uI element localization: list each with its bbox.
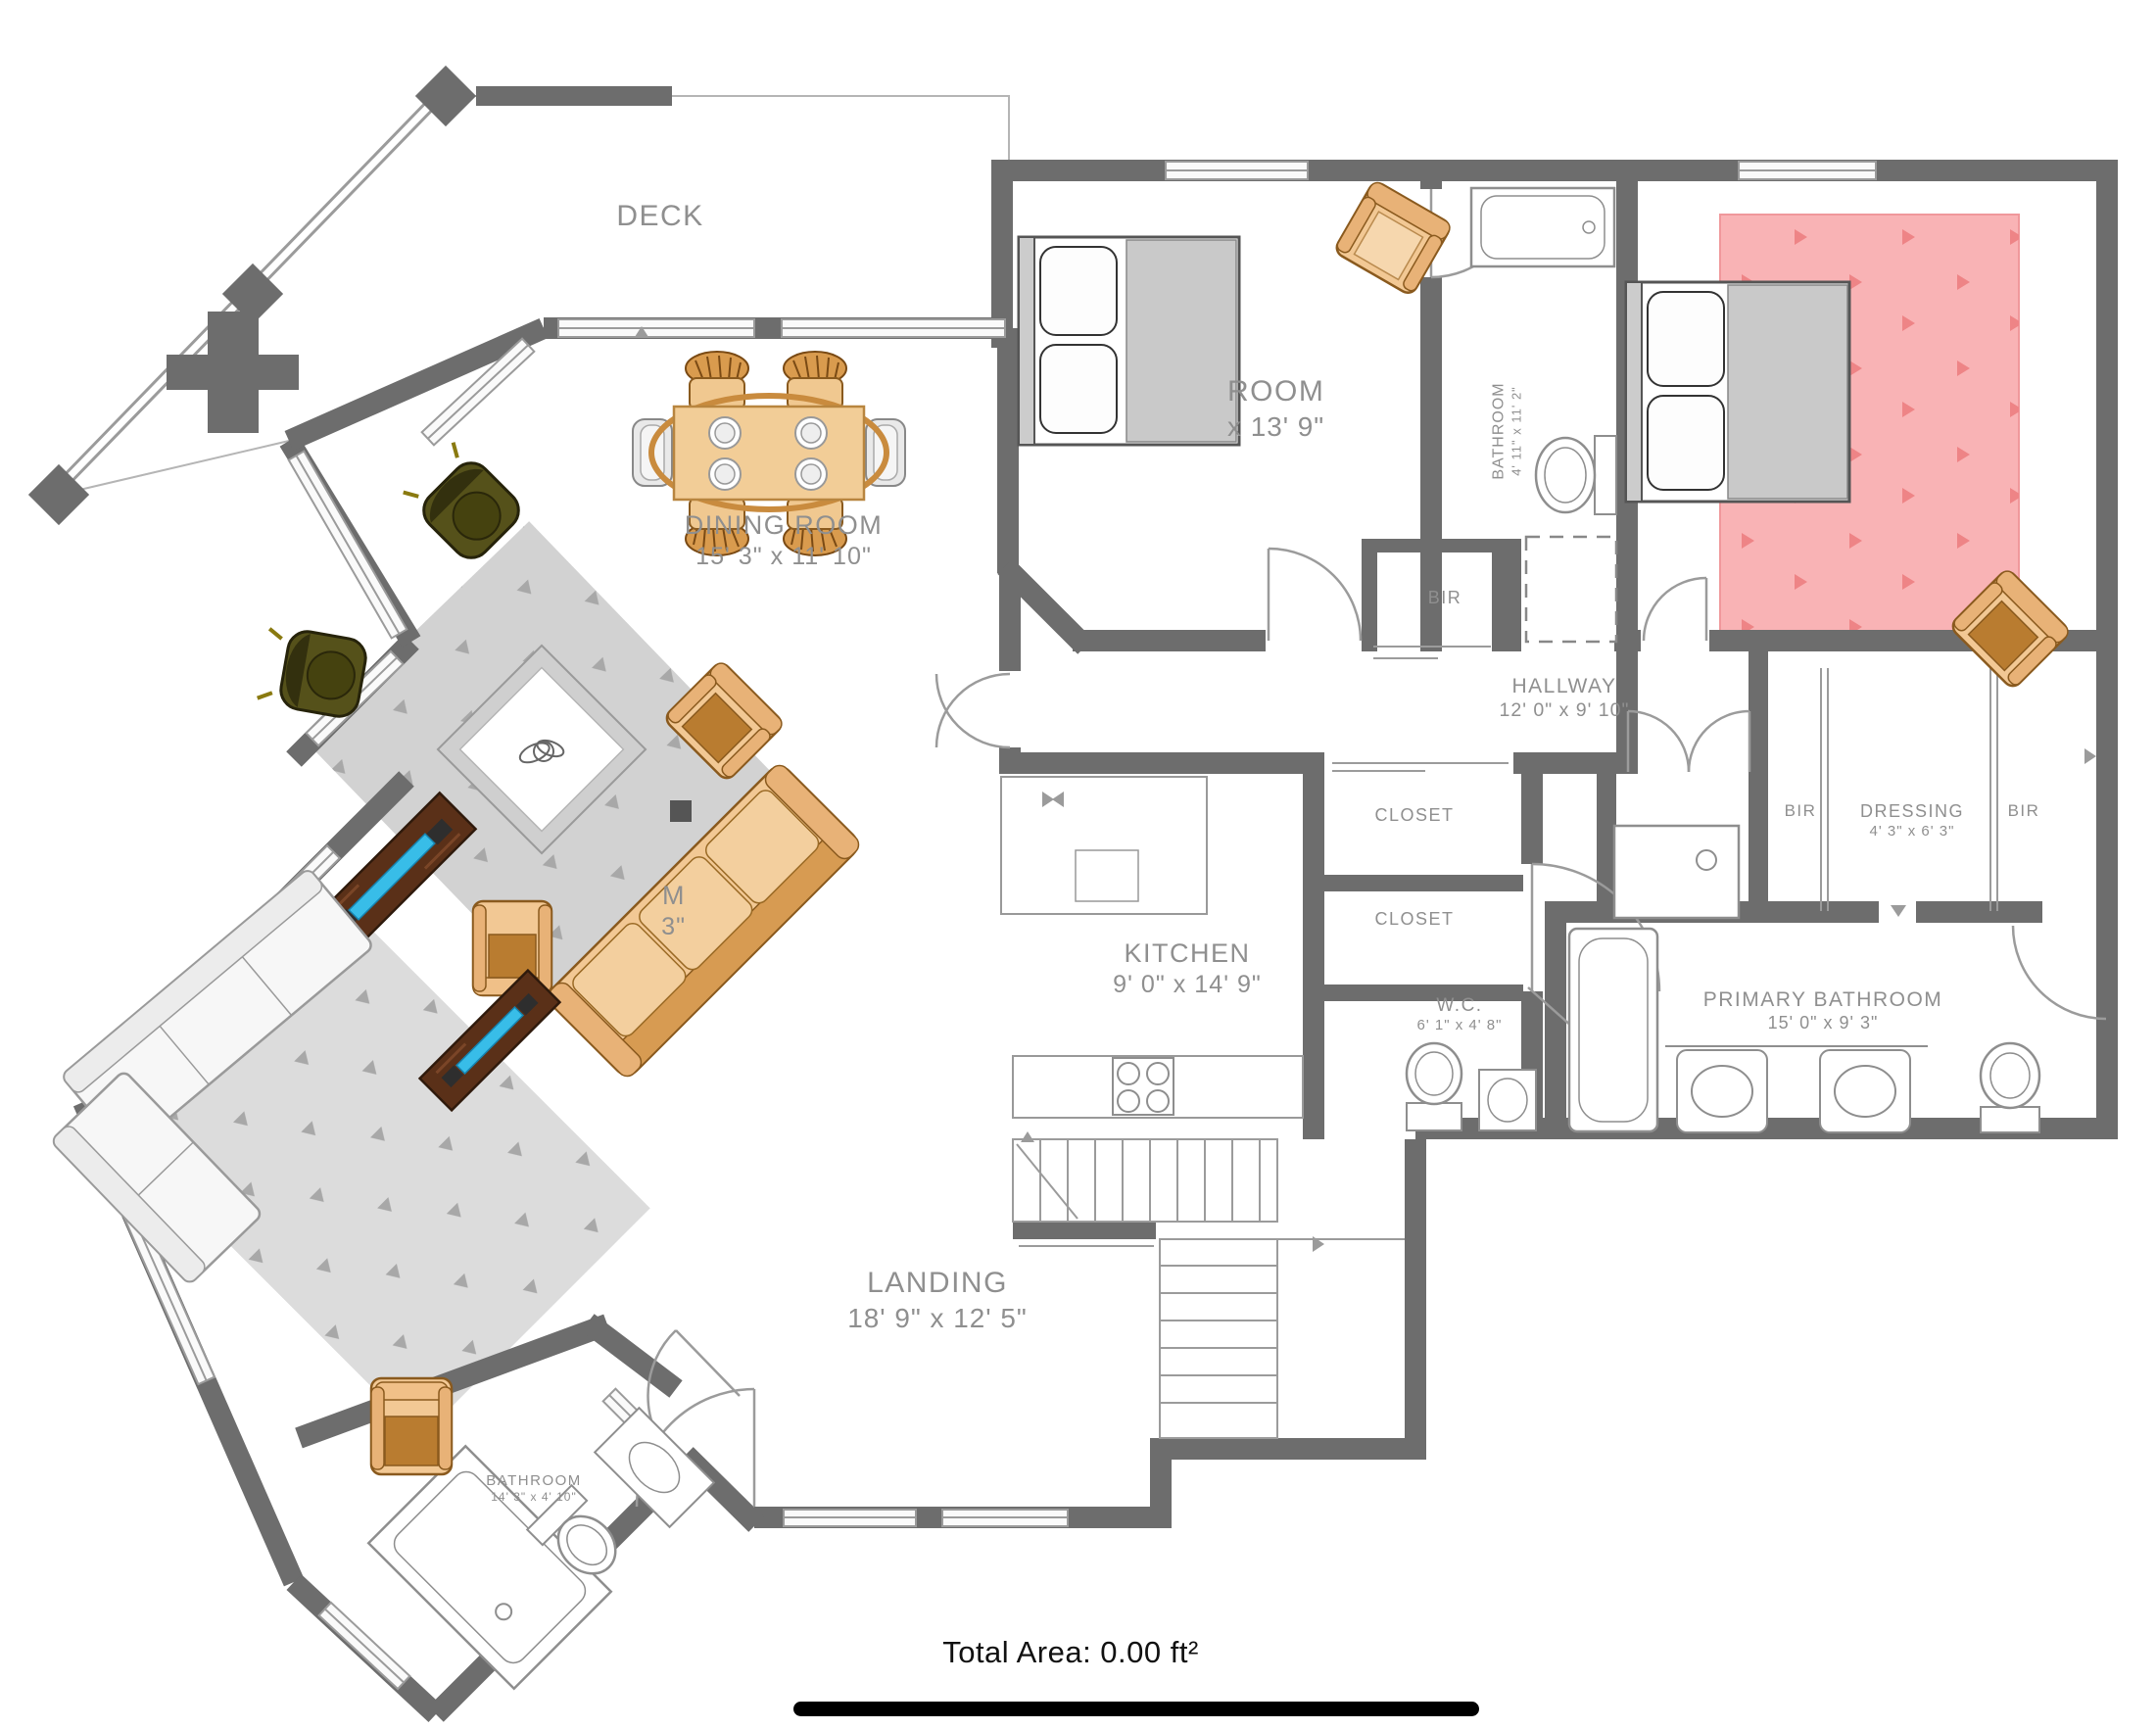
wall-post (670, 800, 692, 822)
mirror-doors-dressing (1821, 668, 1997, 911)
door-kitchen-double (936, 674, 1010, 747)
floorplan-canvas: DECK DINING ROOM 15' 3" x 11' 10" ROOM x… (0, 0, 2156, 1729)
dining-table (674, 407, 864, 500)
room-label-bathroom-lower[interactable]: BATHROOM 14' 3" x 4' 10" (486, 1472, 582, 1505)
toilet-wc[interactable] (1407, 1043, 1461, 1130)
pillow (1648, 292, 1724, 386)
armchair-family[interactable] (371, 1378, 452, 1474)
room-label-landing[interactable]: LANDING 18' 9" x 12' 5" (847, 1266, 1027, 1335)
scale-bar (793, 1702, 1479, 1716)
room-label-bir-left[interactable]: BIR (1785, 801, 1817, 822)
room-label-bathroom-top[interactable]: BATHROOM 4' 11" x 11' 2" (1489, 358, 1523, 504)
headboard (1626, 282, 1642, 502)
kitchen-island[interactable] (1001, 777, 1207, 914)
door-bedroom2 (1644, 578, 1706, 641)
room-label-kitchen[interactable]: KITCHEN 9' 0" x 14' 9" (1113, 937, 1262, 1000)
sink-wc[interactable] (1479, 1070, 1536, 1130)
room-label-closet2[interactable]: CLOSET (1374, 909, 1454, 931)
headboard (1019, 237, 1034, 445)
deck-wall-segment (476, 86, 672, 106)
room-label-bedroom[interactable]: ROOM x 13' 9" (1227, 374, 1324, 444)
stairs-up-arrow-icon (1021, 1131, 1034, 1142)
pillow (1040, 247, 1117, 335)
door-dressing-double (1628, 711, 1749, 772)
room-label-primary-bathroom[interactable]: PRIMARY BATHROOM 15' 0" x 9' 3" (1703, 987, 1943, 1034)
stairs (1013, 1131, 1405, 1438)
pillow (1648, 396, 1724, 490)
bed-2[interactable] (1626, 282, 1849, 502)
room-label-closet1[interactable]: CLOSET (1374, 805, 1454, 827)
shower-top[interactable] (1471, 188, 1614, 266)
floorplan-drawing (0, 0, 2156, 1729)
room-label-bir-top[interactable]: BIR (1428, 588, 1462, 609)
olive-armchair-2[interactable] (257, 625, 368, 719)
total-area-text: Total Area: 0.00 ft² (942, 1635, 1199, 1670)
toilet-top[interactable] (1536, 436, 1616, 514)
room-label-hallway[interactable]: HALLWAY 12' 0" x 9' 10" (1500, 674, 1630, 722)
transition-down-icon (1891, 905, 1906, 917)
bathtub[interactable] (1569, 929, 1657, 1131)
bed-1[interactable] (1019, 237, 1239, 445)
blanket (1728, 285, 1847, 499)
sliding-door-closet1 (1332, 763, 1509, 771)
dashed-void (1526, 537, 1616, 642)
door-bedroom1 (1269, 549, 1361, 641)
transition-right-icon (2084, 748, 2096, 764)
shower-corridor[interactable] (1614, 826, 1739, 918)
room-label-dressing[interactable]: DRESSING 4' 3" x 6' 3" (1860, 801, 1964, 840)
blanket (1126, 240, 1236, 442)
room-label-deck[interactable]: DECK (616, 199, 703, 235)
room-label-dining[interactable]: DINING ROOM 15' 3" x 11' 10" (685, 509, 884, 572)
room-label-bir-right[interactable]: BIR (2008, 801, 2040, 822)
cooktop[interactable] (1113, 1058, 1174, 1115)
room-label-living-partial[interactable]: M 3" (661, 880, 686, 942)
room-label-wc[interactable]: W.C. 6' 1" x 4' 8" (1417, 994, 1503, 1034)
toilet-primary[interactable] (1981, 1043, 2039, 1132)
door-primary-bathroom (2013, 926, 2106, 1019)
sink-lower[interactable] (595, 1408, 714, 1527)
pillow (1040, 345, 1117, 433)
